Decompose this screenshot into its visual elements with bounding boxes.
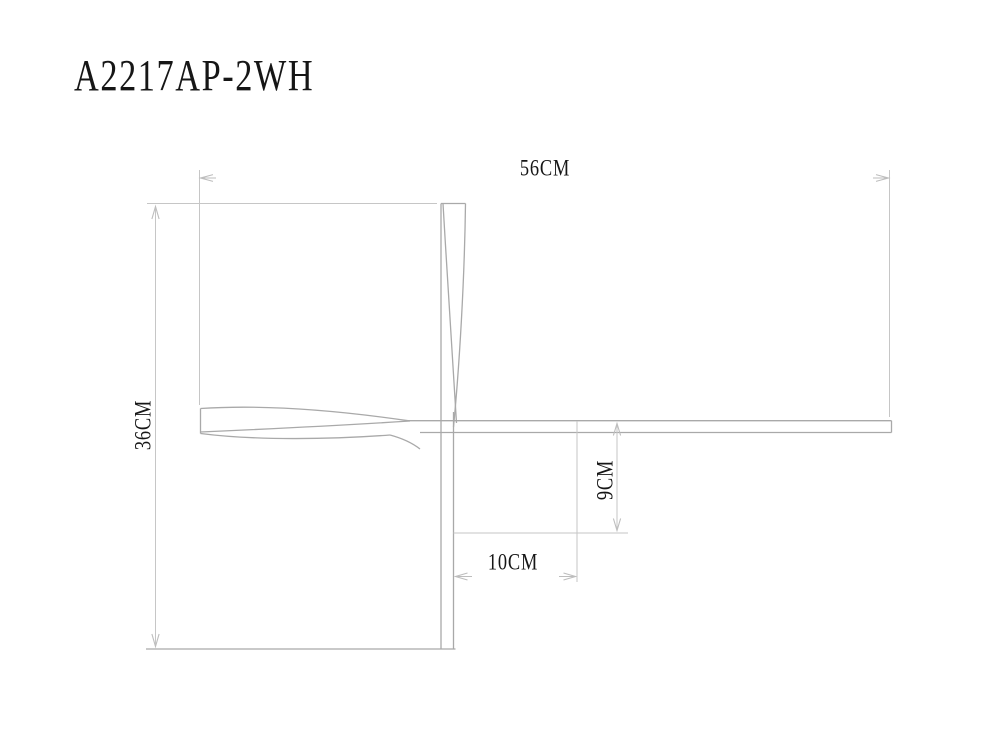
dim-label-overall-height: 36CM	[132, 400, 155, 450]
blade-horizontal-bottom-edge	[201, 434, 391, 439]
spec-sheet: A2217AP-2WH 56CM 36CM 9CM 10CM	[0, 0, 1000, 750]
blade-horizontal-twist-edge	[201, 421, 411, 432]
lamp-fixture	[146, 204, 892, 650]
dimension-lines	[147, 170, 890, 647]
arrow-offset-left	[456, 573, 473, 580]
dim-label-overall-width: 56CM	[520, 157, 570, 180]
arrow-width-right	[873, 175, 889, 182]
blade-vertical-twist-edge	[443, 204, 457, 424]
arrow-offset-right	[559, 573, 576, 580]
dim-label-arm-drop: 9CM	[594, 460, 617, 500]
arrow-width-left	[201, 175, 217, 182]
dim-label-head-offset: 10CM	[488, 551, 538, 574]
blade-horizontal-top-edge	[201, 407, 409, 421]
technical-drawing	[0, 0, 1000, 750]
product-code: A2217AP-2WH	[74, 54, 314, 98]
blade-horizontal-tail	[390, 435, 420, 449]
